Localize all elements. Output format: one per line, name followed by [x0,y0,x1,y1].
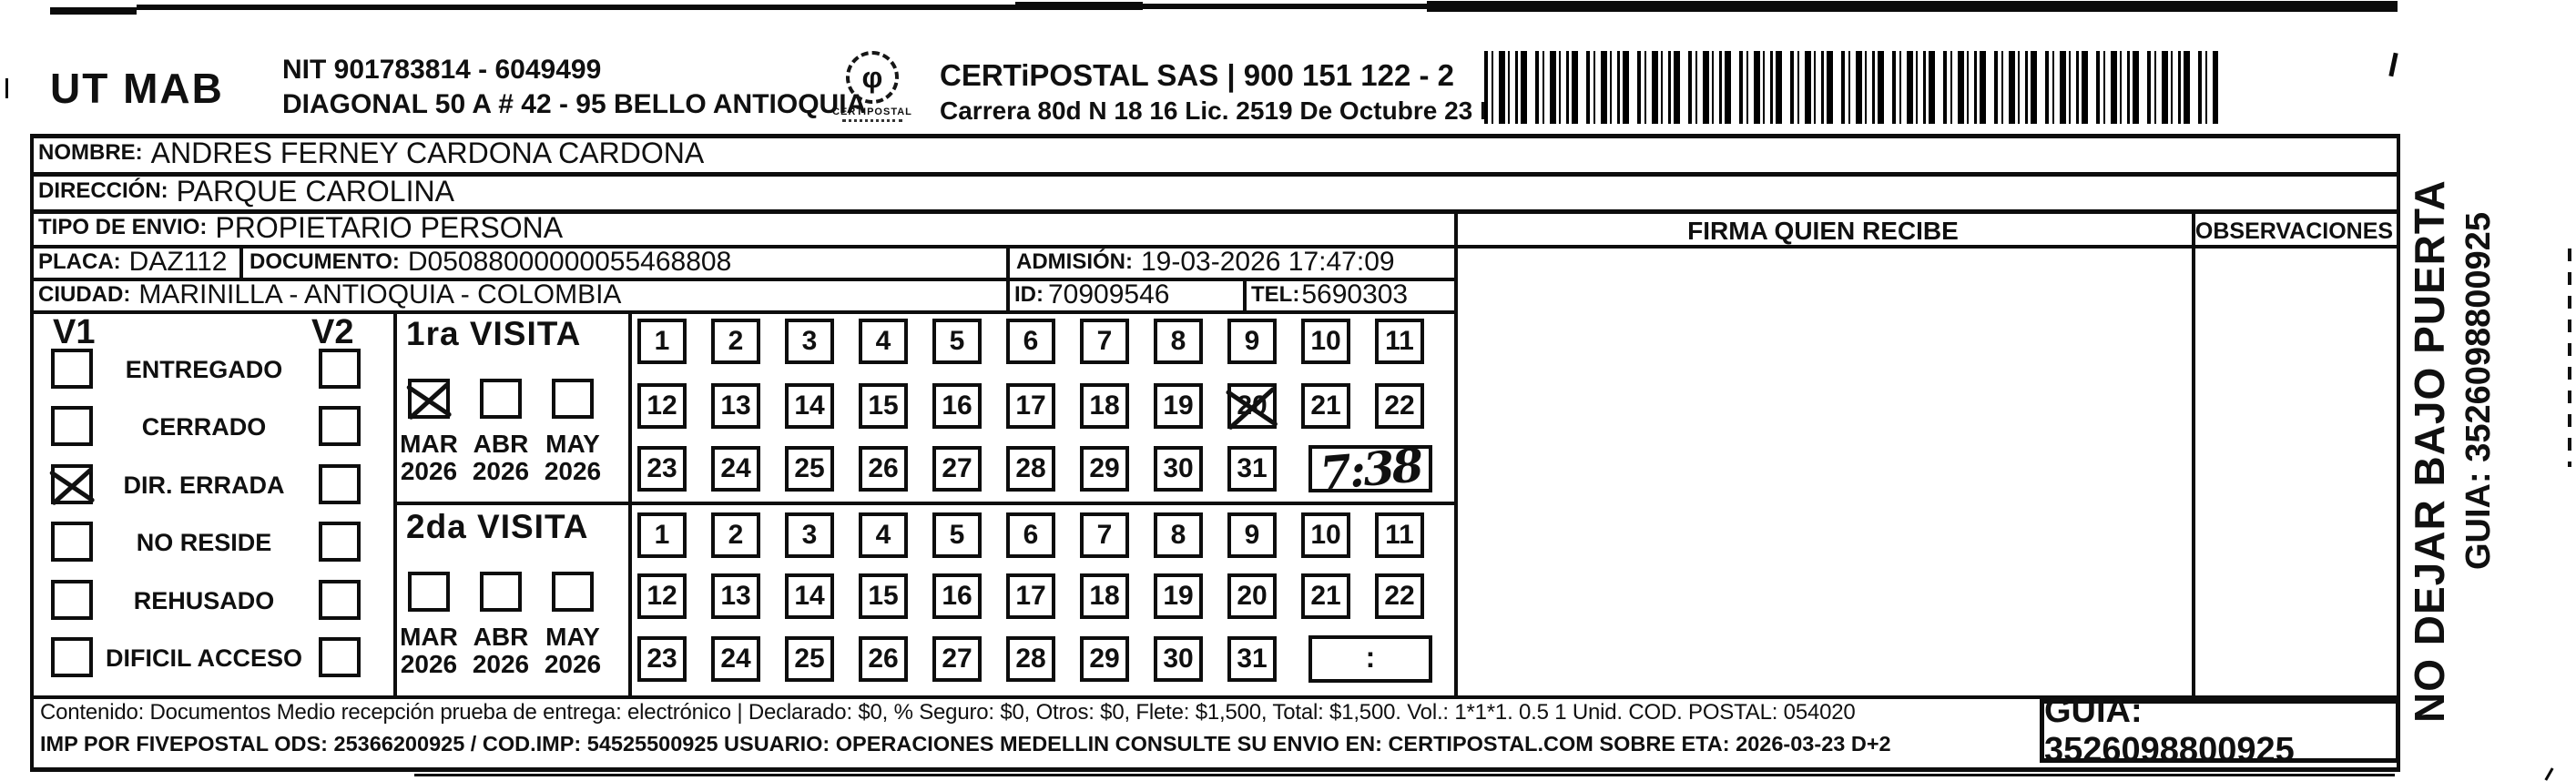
scanned-delivery-form: UT MAB NIT 901783814 - 6049499 DIAGONAL … [0,0,2576,781]
firma-column-header: FIRMA QUIEN RECIBE [1454,217,2192,246]
day-cell-1-visit1: 1 [637,319,687,364]
form-line-h [30,695,2400,699]
year-label-mar-visit2: 2026 [395,650,463,679]
scan-edge-artifact [137,5,1015,10]
field-documento: DOCUMENTO: D05088000000055468808 [249,246,731,279]
form-line-v [1454,209,1458,695]
handwritten-x-mark [1224,380,1280,432]
scan-slash-artifact [2544,767,2553,780]
day-cell-17-visit2: 17 [1006,573,1055,619]
day-cell-17-visit1: 17 [1006,383,1055,429]
field-placa: PLACA: DAZ112 [38,246,227,279]
no-dejar-bajo-puerta-text: NO DEJAR BAJO PUERTA [2405,151,2454,734]
sender-address: DIAGONAL 50 A # 42 - 95 BELLO ANTIOQUIA [282,89,866,120]
day-cell-29-visit2: 29 [1080,636,1129,682]
day-cell-19-visit1: 19 [1154,383,1203,429]
day-cell-12-visit2: 12 [637,573,687,619]
day-cell-2-visit1: 2 [711,319,760,364]
day-cell-30-visit1: 30 [1154,446,1203,492]
form-line-h [30,310,1454,314]
field-id: ID: 70909546 [1014,279,1169,311]
footer-content-line: Contenido: Documentos Medio recepción pr… [40,700,1856,725]
day-cell-14-visit2: 14 [785,573,834,619]
field-nombre-value: ANDRES FERNEY CARDONA CARDONA [151,137,705,170]
day-cell-6-visit2: 6 [1006,512,1055,558]
status-checkbox-v2-dificil-acceso [319,637,361,677]
field-ciudad: CIUDAD: MARINILLA - ANTIOQUIA - COLOMBIA [38,279,621,311]
scan-edge-artifact [1143,4,1427,9]
scan-edge-artifact [50,7,137,15]
day-cell-18-visit2: 18 [1080,573,1129,619]
day-cell-3-visit1: 3 [785,319,834,364]
field-placa-value: DAZ112 [129,247,228,278]
day-cell-3-visit2: 3 [785,512,834,558]
field-documento-label: DOCUMENTO: [249,249,400,275]
company-address: Carrera 80d N 18 16 Lic. 2519 De Octubre… [940,96,1576,126]
day-cell-16-visit2: 16 [932,573,982,619]
day-cell-27-visit2: 27 [932,636,982,682]
day-cell-28-visit2: 28 [1006,636,1055,682]
status-checkbox-v2-rehusado [319,580,361,620]
month-label-mar-visit1: MAR [395,430,463,459]
field-direccion-label: DIRECCIÓN: [38,178,168,204]
day-cell-7-visit1: 7 [1080,319,1129,364]
observaciones-column-header: OBSERVACIONES [2192,218,2397,245]
day-cell-5-visit2: 5 [932,512,982,558]
guia-number-box: GUIA: 3526098800925 [2040,699,2400,763]
year-label-abr-visit2: 2026 [467,650,535,679]
day-cell-26-visit1: 26 [859,446,908,492]
day-cell-23-visit2: 23 [637,636,687,682]
barcode [1484,51,2218,124]
day-cell-12-visit1: 12 [637,383,687,429]
month-label-mar-visit2: MAR [395,623,463,652]
status-checkbox-v1-no-reside [51,522,93,562]
field-tipo-envio-value: PROPIETARIO PERSONA [215,211,563,245]
month-checkbox-may-visit1 [552,379,594,419]
day-cell-21-visit2: 21 [1301,573,1350,619]
day-cell-28-visit1: 28 [1006,446,1055,492]
status-checkbox-v1-rehusado [51,580,93,620]
month-label-may-visit1: MAY [539,430,606,459]
form-line-v [239,245,243,278]
month-label-may-visit2: MAY [539,623,606,652]
day-cell-30-visit2: 30 [1154,636,1203,682]
day-cell-31-visit1: 31 [1227,446,1277,492]
day-cell-8-visit1: 8 [1154,319,1203,364]
handwritten-time: 7:38 [1310,444,1431,496]
day-cell-21-visit1: 21 [1301,383,1350,429]
month-label-abr-visit1: ABR [467,430,535,459]
field-ciudad-value: MARINILLA - ANTIOQUIA - COLOMBIA [138,279,621,310]
day-cell-20-visit1: 20 [1227,383,1277,429]
certipostal-logo: φ CERTIPOSTAL [822,51,922,122]
day-cell-24-visit2: 24 [711,636,760,682]
field-nombre: NOMBRE: ANDRES FERNEY CARDONA CARDONA [38,137,704,169]
day-cell-6-visit1: 6 [1006,319,1055,364]
company-name: CERTiPOSTAL SAS | 900 151 122 - 2 [940,58,1454,93]
field-tel-label: TEL: [1251,282,1299,308]
visit2-column-header: V2 [311,313,353,352]
year-label-abr-visit1: 2026 [467,457,535,486]
form-line-h [393,502,1454,505]
handwritten-x-mark [47,461,96,507]
day-cell-1-visit2: 1 [637,512,687,558]
status-label-entregado: ENTREGADO [91,356,317,384]
scan-bottom-line-artifact [414,774,2395,776]
status-checkbox-v2-cerrado [319,406,361,446]
field-nombre-label: NOMBRE: [38,140,143,166]
field-tipo-envio: TIPO DE ENVIO: PROPIETARIO PERSONA [38,211,563,244]
form-line-h [30,172,2400,177]
day-cell-22-visit2: 22 [1375,573,1424,619]
field-admision-value: 19-03-2026 17:47:09 [1141,247,1395,278]
time-cell-visit2: : [1308,635,1432,683]
side-guia-number: GUIA: 3526098800925 [2459,151,2499,734]
form-line-v [628,310,632,695]
sender-name: UT MAB [50,64,224,113]
day-cell-11-visit2: 11 [1375,512,1424,558]
logo-dashes [842,119,902,122]
day-cell-15-visit1: 15 [859,383,908,429]
form-line-v [30,134,34,767]
field-placa-label: PLACA: [38,249,121,275]
month-checkbox-mar-visit2 [408,572,450,612]
status-checkbox-v1-cerrado [51,406,93,446]
day-cell-5-visit1: 5 [932,319,982,364]
field-id-value: 70909546 [1048,279,1169,310]
scan-edge-artifact [1427,1,2398,12]
month-checkbox-mar-visit1 [408,379,450,419]
status-label-cerrado: CERRADO [91,413,317,441]
form-line-h [30,245,2400,248]
visit-title-1: 1ra VISITA [406,315,581,353]
field-tel-value: 5690303 [1301,279,1408,310]
field-direccion: DIRECCIÓN: PARQUE CAROLINA [38,175,454,208]
status-label-no-reside: NO RESIDE [91,529,317,557]
certipostal-logo-icon: φ [846,51,899,104]
visit1-column-header: V1 [53,313,95,352]
time-cell-visit1: 7:38 [1308,445,1432,492]
status-checkbox-v1-dir-errada [51,464,93,504]
form-line-v [2397,134,2400,767]
day-cell-4-visit2: 4 [859,512,908,558]
scan-right-edge-artifact [2568,248,2571,467]
year-label-may-visit2: 2026 [539,650,606,679]
day-cell-4-visit1: 4 [859,319,908,364]
day-cell-29-visit1: 29 [1080,446,1129,492]
day-cell-20-visit2: 20 [1227,573,1277,619]
handwritten-x-mark [404,375,453,421]
day-cell-31-visit2: 31 [1227,636,1277,682]
day-cell-23-visit1: 23 [637,446,687,492]
side-rotated-text: NO DEJAR BAJO PUERTA GUIA: 3526098800925 [2405,151,2537,734]
month-label-abr-visit2: ABR [467,623,535,652]
year-label-mar-visit1: 2026 [395,457,463,486]
form-line-h [30,278,1454,281]
status-checkbox-v1-entregado [51,349,93,389]
day-cell-2-visit2: 2 [711,512,760,558]
field-direccion-value: PARQUE CAROLINA [177,175,454,208]
scan-tick-artifact [5,78,8,98]
field-admision-label: ADMISIÓN: [1016,249,1133,275]
form-line-h [30,134,2400,138]
footer-imp-line: IMP POR FIVEPOSTAL ODS: 25366200925 / CO… [40,732,1891,756]
form-line-v [1243,278,1247,310]
field-tel: TEL: 5690303 [1251,279,1408,311]
day-cell-19-visit2: 19 [1154,573,1203,619]
day-cell-7-visit2: 7 [1080,512,1129,558]
scan-edge-artifact [1015,2,1143,10]
day-cell-24-visit1: 24 [711,446,760,492]
status-checkbox-v2-entregado [319,349,361,389]
field-id-label: ID: [1014,282,1044,308]
visit-title-2: 2da VISITA [406,508,589,546]
day-cell-13-visit1: 13 [711,383,760,429]
day-cell-15-visit2: 15 [859,573,908,619]
day-cell-25-visit2: 25 [785,636,834,682]
month-checkbox-may-visit2 [552,572,594,612]
day-cell-27-visit1: 27 [932,446,982,492]
form-line-h [30,209,2400,214]
status-label-rehusado: REHUSADO [91,587,317,615]
month-checkbox-abr-visit2 [480,572,522,612]
sender-nit: NIT 901783814 - 6049499 [282,55,601,86]
field-documento-value: D05088000000055468808 [408,247,731,278]
month-checkbox-abr-visit1 [480,379,522,419]
field-tipo-envio-label: TIPO DE ENVIO: [38,215,207,240]
form-line-v [1006,245,1010,310]
certipostal-logo-text: CERTIPOSTAL [822,106,922,117]
day-cell-16-visit1: 16 [932,383,982,429]
scan-mark-artifact [2388,53,2398,76]
day-cell-22-visit1: 22 [1375,383,1424,429]
status-checkbox-v2-dir-errada [319,464,361,504]
day-cell-9-visit2: 9 [1227,512,1277,558]
form-line-h [30,767,2400,772]
status-checkbox-v2-no-reside [319,522,361,562]
day-cell-11-visit1: 11 [1375,319,1424,364]
form-line-v [2192,209,2195,695]
field-admision: ADMISIÓN: 19-03-2026 17:47:09 [1016,246,1395,279]
day-cell-9-visit1: 9 [1227,319,1277,364]
day-cell-26-visit2: 26 [859,636,908,682]
status-label-dificil-acceso: DIFICIL ACCESO [91,644,317,673]
field-ciudad-label: CIUDAD: [38,282,130,308]
day-cell-18-visit1: 18 [1080,383,1129,429]
status-checkbox-v1-dificil-acceso [51,637,93,677]
day-cell-10-visit2: 10 [1301,512,1350,558]
day-cell-13-visit2: 13 [711,573,760,619]
day-cell-8-visit2: 8 [1154,512,1203,558]
status-label-dir-errada: DIR. ERRADA [91,472,317,500]
day-cell-25-visit1: 25 [785,446,834,492]
day-cell-14-visit1: 14 [785,383,834,429]
day-cell-10-visit1: 10 [1301,319,1350,364]
year-label-may-visit1: 2026 [539,457,606,486]
